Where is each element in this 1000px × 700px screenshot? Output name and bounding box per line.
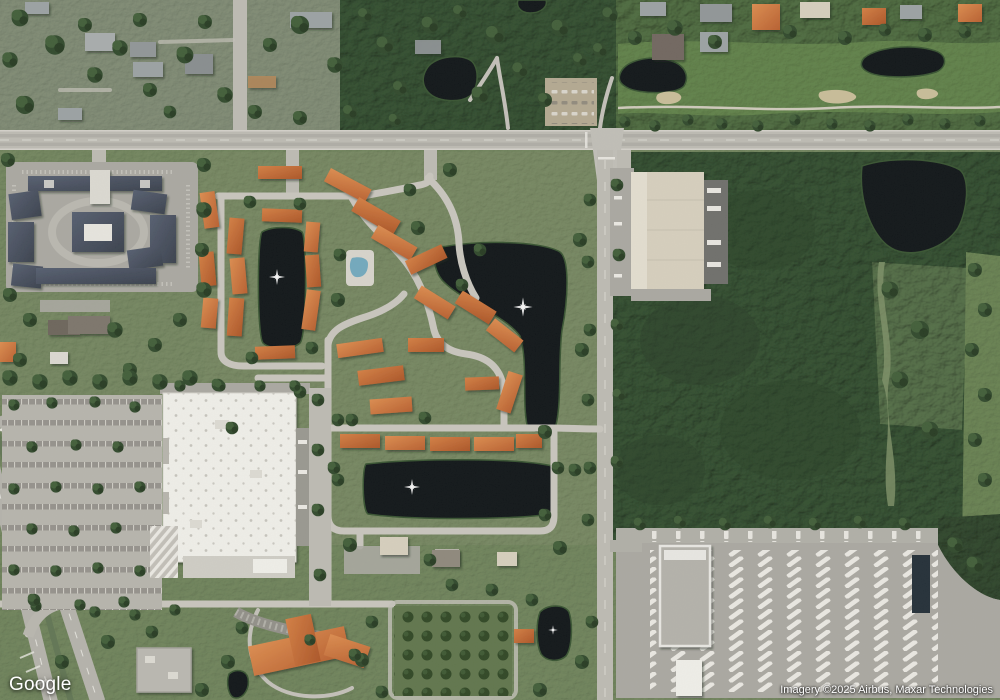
map-viewport[interactable]: Google Imagery ©2025 Airbus, Maxar Techn…: [0, 0, 1000, 700]
map-canvas[interactable]: [0, 0, 1000, 700]
film-grain: [0, 0, 1000, 700]
google-logo[interactable]: Google: [9, 674, 71, 696]
map-attribution: Imagery ©2025 Airbus, Maxar Technologies: [780, 684, 993, 696]
